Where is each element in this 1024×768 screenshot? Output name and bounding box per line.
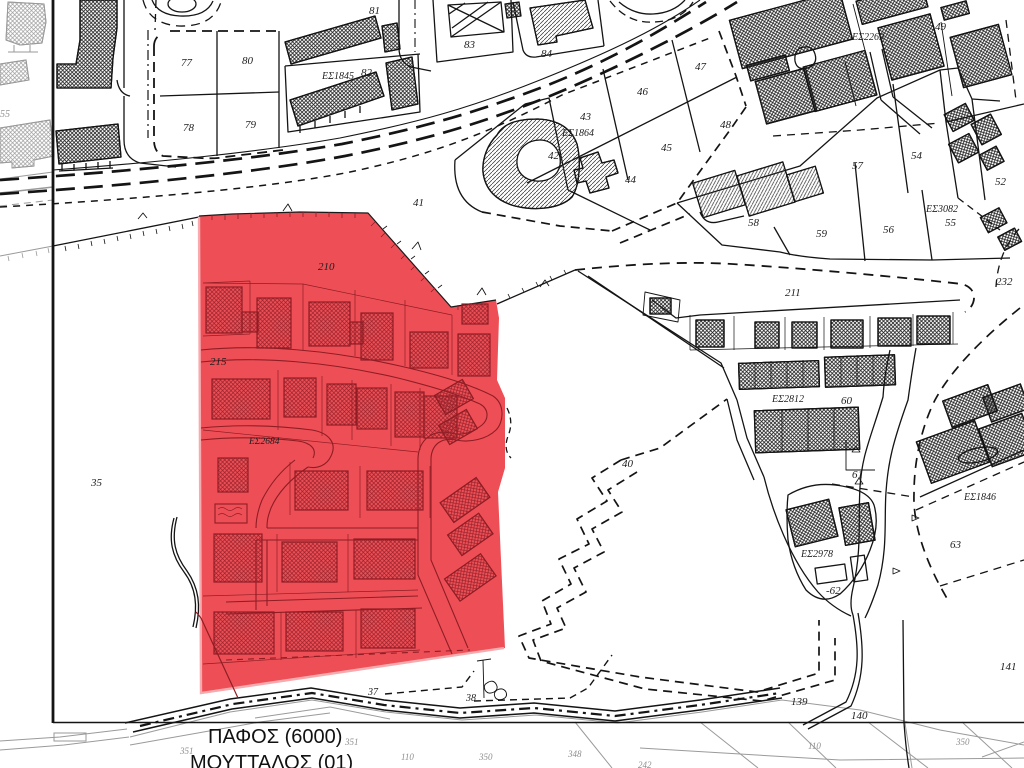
svg-text:210: 210 [318,261,335,273]
svg-text:ΕΣ2812: ΕΣ2812 [771,394,804,405]
svg-text:ΕΣ2684: ΕΣ2684 [248,437,280,447]
svg-text:37: 37 [367,687,379,698]
svg-text:55: 55 [0,109,10,120]
svg-text:60: 60 [841,395,853,407]
svg-text:-62: -62 [826,585,841,597]
svg-text:350: 350 [478,752,493,762]
svg-text:38: 38 [465,693,476,704]
svg-text:56: 56 [883,224,895,236]
svg-text:242: 242 [638,760,652,768]
svg-text:54: 54 [911,150,923,162]
svg-text:141: 141 [1000,661,1017,673]
svg-text:46: 46 [637,86,649,98]
svg-text:348: 348 [567,749,582,759]
svg-text:ΕΣ1845: ΕΣ1845 [321,71,354,82]
svg-text:ΕΣ2978: ΕΣ2978 [800,549,833,560]
svg-text:61: 61 [852,469,863,481]
svg-text:57: 57 [852,160,864,172]
svg-text:58: 58 [748,217,760,229]
svg-text:84: 84 [541,48,553,60]
svg-text:ΕΣ2269: ΕΣ2269 [851,32,884,43]
svg-text:41: 41 [413,197,424,209]
svg-text:43: 43 [580,111,592,123]
svg-text:139: 139 [791,696,808,708]
svg-text:35: 35 [90,477,103,489]
svg-text:78: 78 [183,122,195,134]
svg-text:ΕΣ1846: ΕΣ1846 [963,492,996,503]
svg-text:59: 59 [816,228,828,240]
svg-text:48: 48 [720,119,732,131]
svg-text:82: 82 [361,67,373,79]
svg-text:232: 232 [996,276,1013,288]
svg-text:ΕΣ1864: ΕΣ1864 [561,128,594,139]
svg-text:55: 55 [945,217,957,229]
svg-text:40: 40 [622,458,634,470]
svg-text:ΕΣ3082: ΕΣ3082 [925,204,958,215]
svg-text:45: 45 [661,142,673,154]
svg-text:44: 44 [625,174,637,186]
svg-text:110: 110 [808,741,821,751]
svg-text:350: 350 [955,737,970,747]
svg-text:ΜΟΥΤΤΑΛΟΣ (01): ΜΟΥΤΤΑΛΟΣ (01) [190,752,353,768]
svg-text:80: 80 [242,55,254,67]
svg-text:47: 47 [695,61,707,73]
svg-text:211: 211 [785,287,801,299]
svg-text:77: 77 [181,57,193,69]
svg-text:49: 49 [935,21,947,33]
svg-text:79: 79 [245,119,257,131]
svg-text:140: 140 [851,710,868,722]
svg-text:ΠΑΦΟΣ (6000): ΠΑΦΟΣ (6000) [208,726,342,748]
svg-text:215: 215 [210,356,227,368]
svg-text:81: 81 [369,5,380,17]
svg-text:42: 42 [548,150,560,162]
svg-text:52: 52 [995,176,1007,188]
svg-text:63: 63 [950,539,962,551]
svg-text:351: 351 [344,737,359,747]
svg-text:110: 110 [401,752,414,762]
svg-text:83: 83 [464,39,476,51]
